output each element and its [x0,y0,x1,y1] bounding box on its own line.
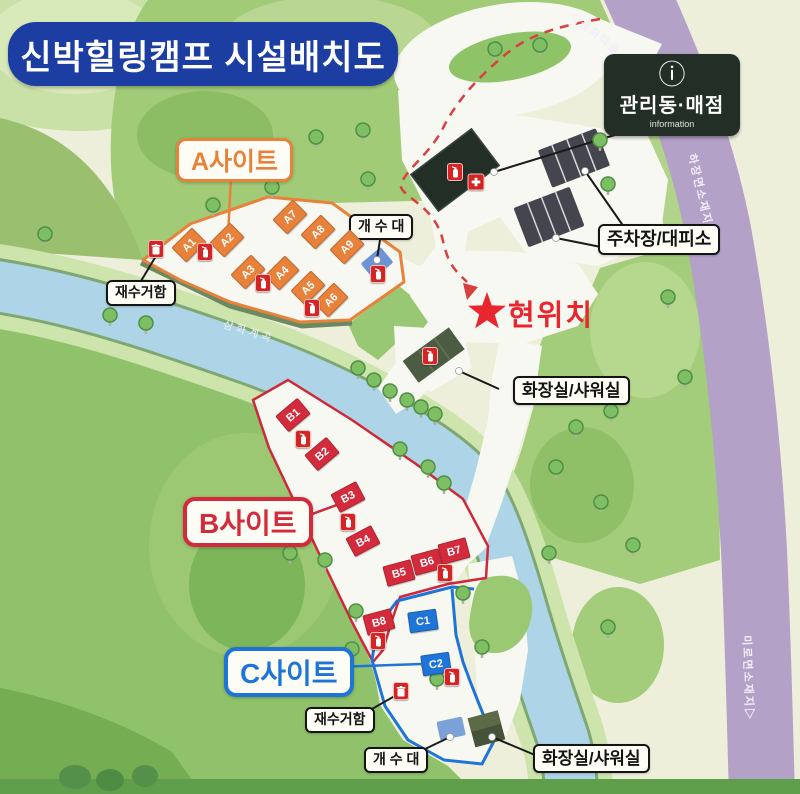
tent-pad-B5: B5 [382,559,415,587]
info-sign-title: 관리동·매점 [620,89,725,118]
tent-pad-A8: A8 [300,214,335,249]
parking-shelter-label: 주차장/대피소 [598,224,720,255]
fire-extinguisher-icon [437,564,453,582]
ash-bin-c-label: 재수거함 [305,707,375,733]
fire-extinguisher-icon [197,243,213,261]
tent-pad-B3: B3 [330,481,365,513]
tent-pad-C1: C1 [407,609,439,634]
tent-pad-B7: B7 [437,537,470,565]
info-sign: ⓘ 관리동·매점 information [604,54,740,136]
river-label: 삼화계곡 [221,316,276,347]
fire-extinguisher-icon [370,632,386,650]
site-c-label: C사이트 [224,647,354,697]
campground-map-sign: ◁삼화마을 하장면소재지▷ 미로면소재지▷ 삼화계곡 신박힐링캠프 시설배치도 … [0,0,800,794]
tent-pad-A7: A7 [272,199,307,234]
site-b-label: B사이트 [183,497,313,547]
fire-extinguisher-icon [447,163,463,181]
tent-pad-B1: B1 [275,398,311,433]
tent-pad-A2: A2 [209,222,244,257]
site-a-label: A사이트 [176,138,293,182]
ash-bin-icon [393,682,409,700]
sink-c-label: 개 수 대 [364,747,428,773]
ash-bin-icon [148,240,164,258]
road-label-top: ◁삼화마을 [566,8,624,58]
label-overlay: ◁삼화마을 하장면소재지▷ 미로면소재지▷ 삼화계곡 신박힐링캠프 시설배치도 … [0,0,800,794]
ash-bin-a-label: 재수거함 [106,280,176,306]
fire-extinguisher-icon [422,347,438,365]
road-label-bottom: 미로면소재지▷ [739,635,758,721]
fire-extinguisher-icon [340,513,356,531]
fire-extinguisher-icon [255,274,271,292]
map-title: 신박힐링캠프 시설배치도 [8,22,398,86]
info-sign-subtitle: information [650,119,695,129]
fire-extinguisher-icon [295,430,311,448]
fire-extinguisher-icon [304,299,320,317]
fire-extinguisher-icon [444,668,460,686]
info-icon: ⓘ [659,62,686,88]
fire-extinguisher-icon [370,265,386,283]
current-location-label: 현위치 [508,292,594,334]
toilet-shower-c-label: 화장실/샤워실 [533,744,650,773]
toilet-shower-mid-label: 화장실/샤워실 [513,376,630,405]
sink-a-label: 개 수 대 [349,214,413,240]
first-aid-icon [468,174,485,191]
